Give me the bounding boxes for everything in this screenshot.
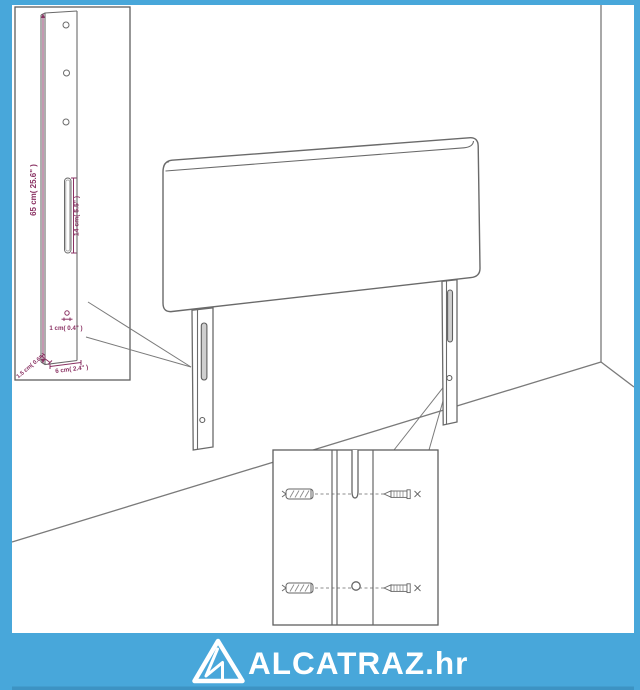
hardware-detail-inset bbox=[273, 450, 438, 625]
wall-plug-icon bbox=[282, 489, 313, 499]
mounting-slot-icon bbox=[201, 323, 207, 380]
brand-wordmark: ALCATRAZ.hr bbox=[248, 645, 468, 681]
leg-detail-inset: 65 cm( 25.6" ) 14 cm( 5.5" ) 1 cm( 0.4" … bbox=[15, 7, 130, 380]
footer-logo-band: ALCATRAZ.hr bbox=[0, 633, 640, 690]
dimension-label-hole: 1 cm( 0.4" ) bbox=[49, 325, 82, 332]
dimension-label-height: 65 cm( 25.6" ) bbox=[29, 164, 38, 216]
headboard-leg-left bbox=[192, 308, 213, 450]
screw-hole-icon bbox=[447, 376, 452, 381]
mounting-slot-icon bbox=[448, 290, 453, 342]
screw-hole-icon bbox=[200, 418, 205, 423]
frame-right bbox=[634, 0, 640, 690]
wall-plug-icon bbox=[282, 583, 313, 593]
dimension-label-slot: 14 cm( 5.5" ) bbox=[74, 196, 81, 236]
screw-hole-icon bbox=[63, 22, 69, 28]
frame-top bbox=[0, 0, 640, 5]
screw-hole-icon bbox=[352, 582, 360, 590]
screw-hole-icon bbox=[64, 70, 70, 76]
headboard-leg-right bbox=[442, 280, 457, 425]
screw-hole-icon bbox=[63, 119, 69, 125]
mounting-slot-icon bbox=[352, 450, 358, 498]
frame-left bbox=[0, 0, 12, 690]
product-dimension-diagram: 65 cm( 25.6" ) 14 cm( 5.5" ) 1 cm( 0.4" … bbox=[0, 0, 640, 690]
logo-band-shadow bbox=[0, 687, 640, 690]
